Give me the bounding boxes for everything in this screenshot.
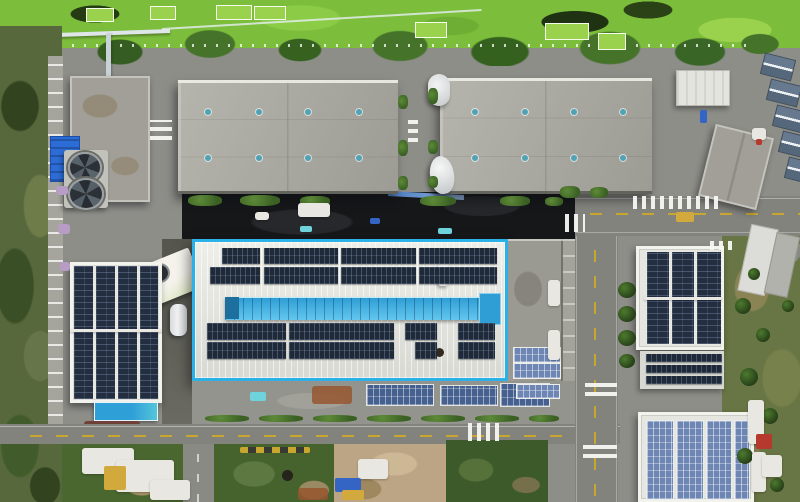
sports-court <box>254 6 286 20</box>
hedge <box>421 415 465 422</box>
road-edge-line <box>616 236 617 502</box>
sports-court <box>216 5 252 20</box>
car <box>700 110 707 123</box>
lane-marking-yellow <box>590 213 800 215</box>
rooftop-solar-array <box>419 248 497 264</box>
crosswalk <box>565 214 585 232</box>
hedge <box>313 415 357 422</box>
tarp <box>762 455 782 477</box>
cabin-roof <box>778 130 800 159</box>
cooling-fan <box>68 178 104 210</box>
hedge <box>240 195 280 206</box>
roof-vent <box>571 155 577 161</box>
tarp <box>298 203 330 217</box>
lane-marking-yellow <box>594 246 596 496</box>
debris <box>60 262 70 271</box>
rooftop-solar-array <box>458 323 495 340</box>
cabin-roof <box>784 156 800 185</box>
annex-solar-array <box>513 363 561 379</box>
solar-column <box>646 420 674 500</box>
tree <box>618 282 636 298</box>
hedge <box>428 88 438 104</box>
roof-skylight <box>225 297 493 320</box>
roof-vent <box>356 155 362 161</box>
lane-marking-white <box>197 444 199 502</box>
ac-unit <box>548 330 560 360</box>
warehouse-north-east <box>440 78 652 194</box>
tree <box>770 478 784 492</box>
hedge <box>475 415 519 422</box>
solar-column <box>706 420 732 500</box>
roof-vent <box>571 109 577 115</box>
hedge <box>590 187 608 198</box>
tree <box>762 408 778 424</box>
tree <box>735 298 751 314</box>
tarp <box>150 480 190 500</box>
annex-solar-array <box>516 384 560 399</box>
rooftop-solar-array <box>207 342 286 359</box>
cabin-roof <box>772 104 800 133</box>
tarp <box>358 459 388 479</box>
hedge <box>205 415 249 422</box>
debris <box>370 218 380 224</box>
hut <box>104 466 126 490</box>
sports-court <box>415 22 447 38</box>
roof-vent <box>305 109 311 115</box>
roof-vent <box>205 155 211 161</box>
debris <box>58 224 70 234</box>
solar-row <box>646 354 722 362</box>
tree <box>618 306 636 322</box>
debris <box>298 488 328 500</box>
ac-unit <box>548 280 560 306</box>
sports-court <box>598 33 626 50</box>
blue-canopy <box>94 402 158 421</box>
storage-tank <box>170 304 187 336</box>
hedge <box>367 415 411 422</box>
solar-column <box>676 420 704 500</box>
roof-vent <box>256 155 262 161</box>
debris <box>56 186 68 195</box>
rooftop-solar-array <box>341 267 416 284</box>
rooftop-solar-array <box>289 323 394 340</box>
barrier-yellow-black <box>240 447 310 453</box>
solar-column <box>74 266 93 399</box>
road-vertical-east <box>575 236 618 502</box>
tree <box>782 300 794 312</box>
white-roof-building <box>676 70 730 106</box>
roof-vent <box>522 155 528 161</box>
roof-vent <box>256 109 262 115</box>
cabin-roof <box>766 78 800 107</box>
hedge <box>428 176 438 188</box>
hedge <box>545 197 563 206</box>
rooftop-solar-array <box>419 267 497 284</box>
rooftop-solar-array <box>289 342 394 359</box>
crosswalk <box>408 118 418 142</box>
roof-vent <box>620 155 626 161</box>
crosswalk <box>633 196 719 209</box>
barrel <box>282 470 293 481</box>
crosswalk <box>710 241 734 250</box>
roof-vent <box>620 109 626 115</box>
roof-vent <box>305 155 311 161</box>
hedge <box>188 195 222 206</box>
tree <box>748 268 760 280</box>
tarp <box>255 212 269 220</box>
rooftop-solar-array <box>264 248 338 264</box>
crosswalk <box>468 423 504 441</box>
sports-court <box>150 6 176 20</box>
roof-walkway <box>70 329 162 332</box>
rooftop-solar-array <box>222 248 260 264</box>
hedge <box>398 140 408 156</box>
sports-court <box>545 23 589 40</box>
roof-vent <box>472 109 478 115</box>
shed-marker <box>756 139 762 145</box>
hedge <box>398 95 408 109</box>
road-edge-line <box>0 426 620 427</box>
ground-solar-array <box>440 385 498 406</box>
excavator <box>676 212 694 222</box>
sports-court <box>86 8 114 22</box>
rooftop-solar-array <box>207 323 286 340</box>
hedge <box>500 196 530 206</box>
fence-line <box>0 44 756 47</box>
ground-solar-array <box>366 384 434 406</box>
debris <box>312 386 352 404</box>
warehouse-north-west <box>178 80 398 194</box>
container <box>756 434 772 449</box>
roof-walkway <box>644 297 722 300</box>
roof-vent <box>356 109 362 115</box>
tree <box>618 330 636 346</box>
debris <box>342 490 364 500</box>
rooftop-solar-array <box>264 267 338 284</box>
solar-column <box>118 266 137 399</box>
crosswalk <box>585 381 617 396</box>
hedge <box>529 415 559 422</box>
hedge <box>428 140 438 154</box>
roof-vent <box>205 109 211 115</box>
roof-vent <box>472 155 478 161</box>
tree <box>756 328 770 342</box>
roof-vent <box>522 109 528 115</box>
solar-row <box>646 376 722 384</box>
rooftop-solar-array <box>341 248 416 264</box>
crosswalk <box>583 443 617 458</box>
rooftop-solar-array <box>458 342 495 359</box>
hedge <box>259 415 303 422</box>
aerial-photo-stage <box>0 0 800 502</box>
solar-column <box>140 266 158 399</box>
road-edge-line <box>576 236 577 502</box>
rooftop-solar-array <box>405 323 437 340</box>
solar-row <box>646 365 722 373</box>
green-field-south <box>446 440 548 502</box>
rooftop-solar-array <box>210 267 260 284</box>
debris <box>438 228 452 234</box>
pool <box>250 392 266 401</box>
hedge <box>560 186 580 198</box>
skylight-end-cap <box>479 293 501 325</box>
hedge <box>420 196 456 206</box>
skylight-end-cap <box>225 297 239 319</box>
perimeter-wall <box>48 56 63 430</box>
tree <box>740 368 758 386</box>
crosswalk <box>150 120 172 140</box>
tree <box>737 448 753 464</box>
debris <box>300 226 312 232</box>
lane-marking-yellow <box>30 435 590 437</box>
hedge <box>398 176 408 190</box>
solar-column <box>96 266 115 399</box>
tree <box>619 354 635 368</box>
rooftop-solar-array <box>415 342 437 359</box>
